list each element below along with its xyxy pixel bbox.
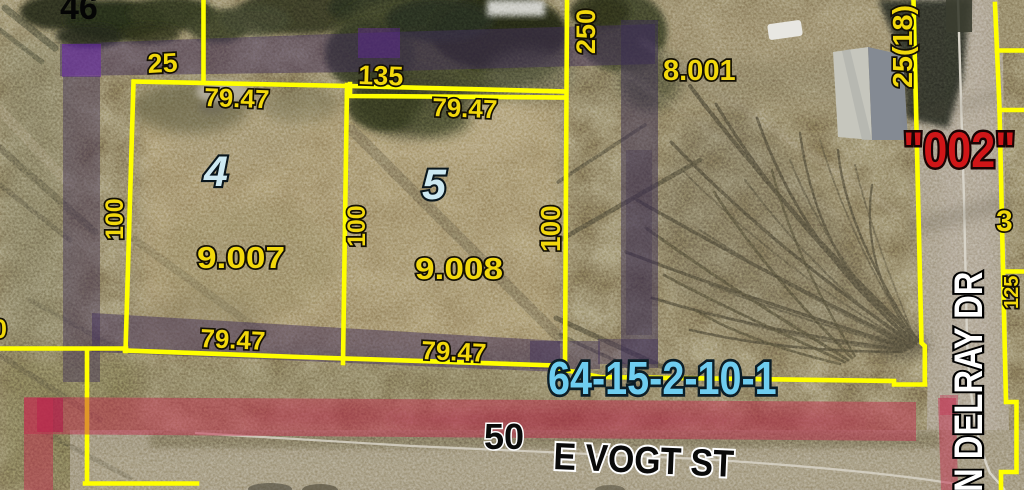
svg-text:79.47: 79.47	[432, 92, 498, 124]
svg-text:25(18): 25(18)	[887, 5, 918, 88]
svg-text:N DELRAY DR: N DELRAY DR	[946, 272, 991, 490]
svg-text:64-15-2-10-1: 64-15-2-10-1	[548, 353, 777, 404]
svg-text:46: 46	[60, 0, 98, 27]
svg-text:79.47: 79.47	[421, 335, 487, 368]
svg-text:125: 125	[1001, 276, 1023, 309]
svg-text:79.47: 79.47	[200, 323, 266, 356]
svg-text:8.001: 8.001	[663, 55, 736, 87]
svg-text:100: 100	[535, 205, 566, 252]
svg-text:50: 50	[484, 416, 524, 457]
svg-text:79.47: 79.47	[204, 82, 270, 114]
svg-text:100: 100	[101, 198, 129, 240]
svg-text:4: 4	[203, 148, 228, 196]
svg-text:100: 100	[343, 205, 371, 247]
svg-text:E VOGT ST: E VOGT ST	[553, 434, 735, 485]
svg-text:3: 3	[996, 205, 1013, 238]
svg-text:0: 0	[0, 314, 7, 344]
svg-text:5: 5	[422, 161, 447, 209]
svg-text:250: 250	[571, 9, 601, 54]
svg-text:"002": "002"	[903, 122, 1016, 178]
svg-text:135: 135	[358, 60, 404, 92]
svg-text:9.008: 9.008	[415, 251, 503, 286]
svg-text:9.007: 9.007	[197, 240, 285, 275]
svg-text:25: 25	[147, 47, 179, 79]
